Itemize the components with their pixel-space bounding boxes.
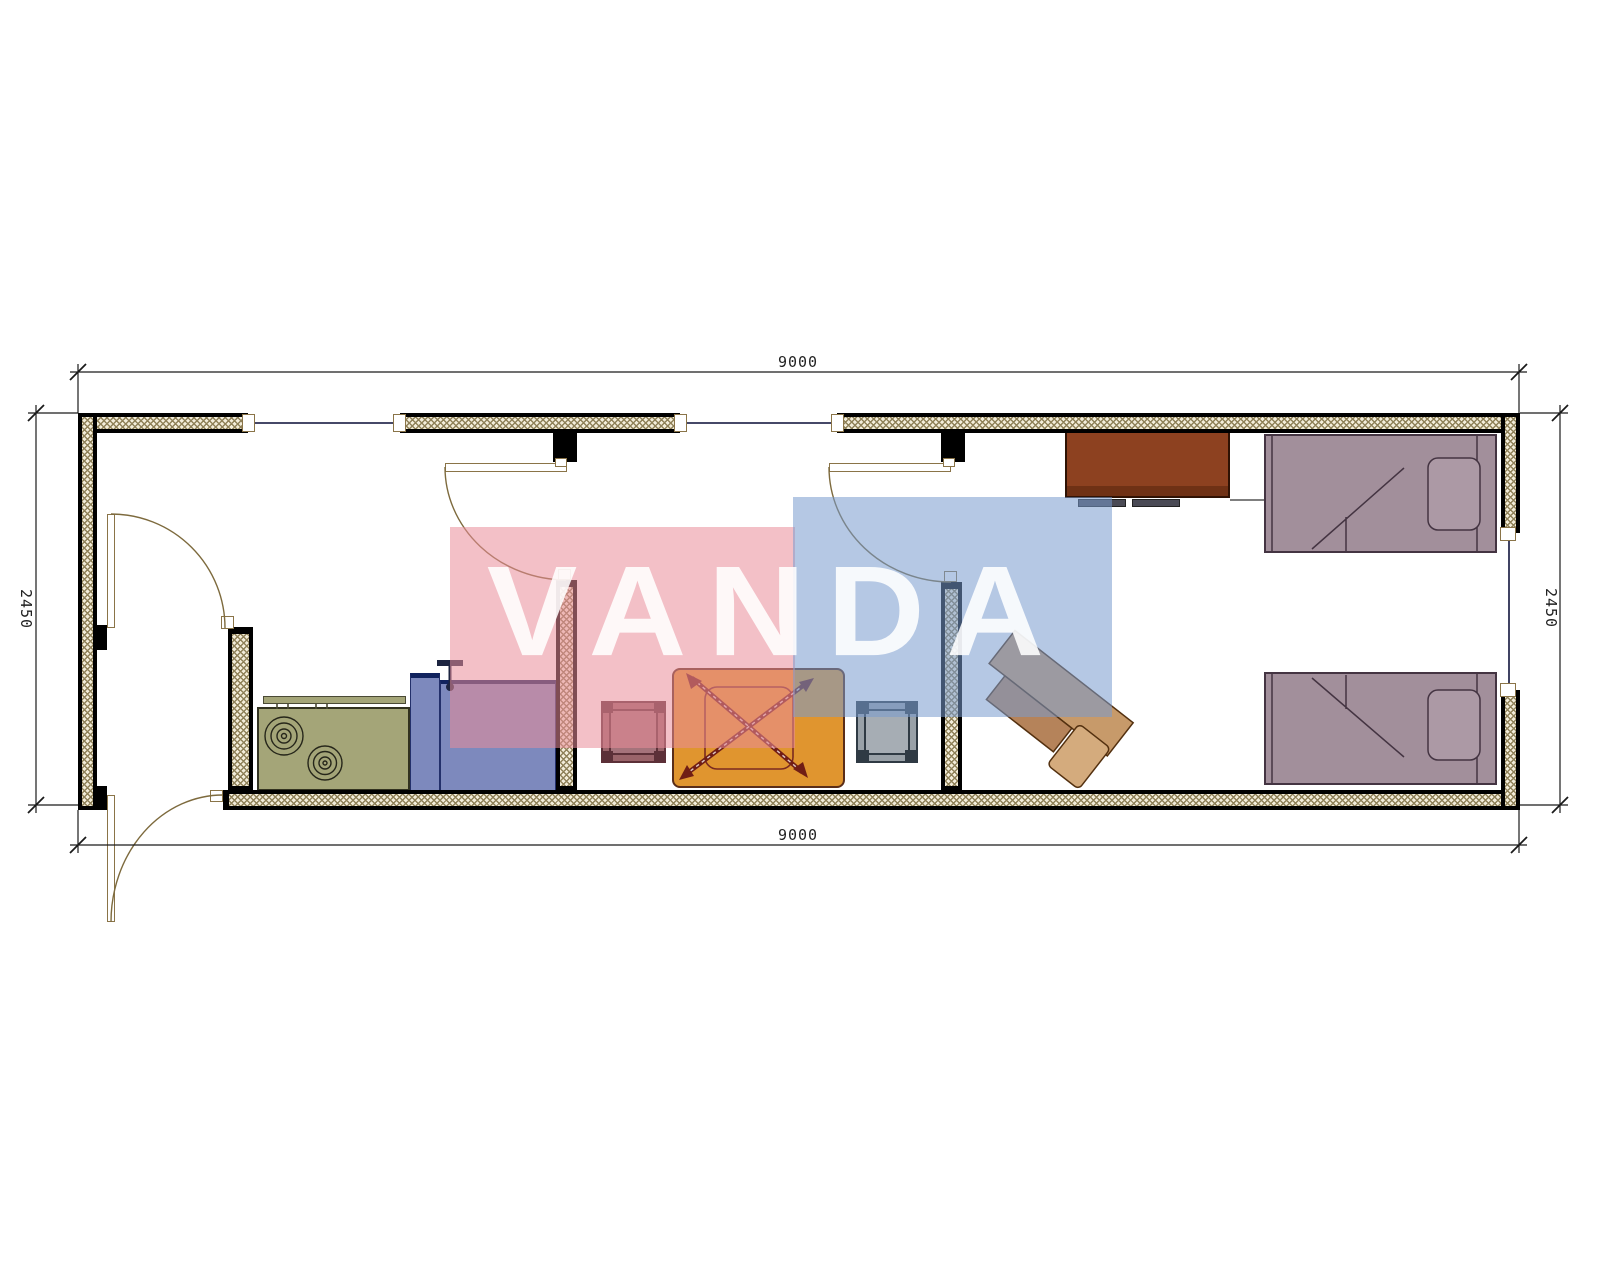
vestibule-door-arc — [111, 514, 225, 628]
floor-plan-canvas: 9000 9000 2450 2450 VANDA — [0, 0, 1600, 1280]
entry-door-arc — [111, 795, 223, 922]
bed-top-detail — [1272, 436, 1480, 551]
pillow — [1428, 458, 1480, 530]
watermark-text: VANDA — [487, 538, 1065, 685]
dimension-left: 2450 — [17, 589, 35, 629]
stove-burners — [265, 717, 342, 780]
stove-hood-ticks — [277, 704, 327, 709]
dimension-right: 2450 — [1542, 588, 1560, 628]
pillow — [1428, 690, 1480, 760]
dimension-bottom: 9000 — [778, 826, 818, 844]
dimension-top: 9000 — [778, 353, 818, 371]
bed-bottom-detail — [1272, 674, 1480, 783]
